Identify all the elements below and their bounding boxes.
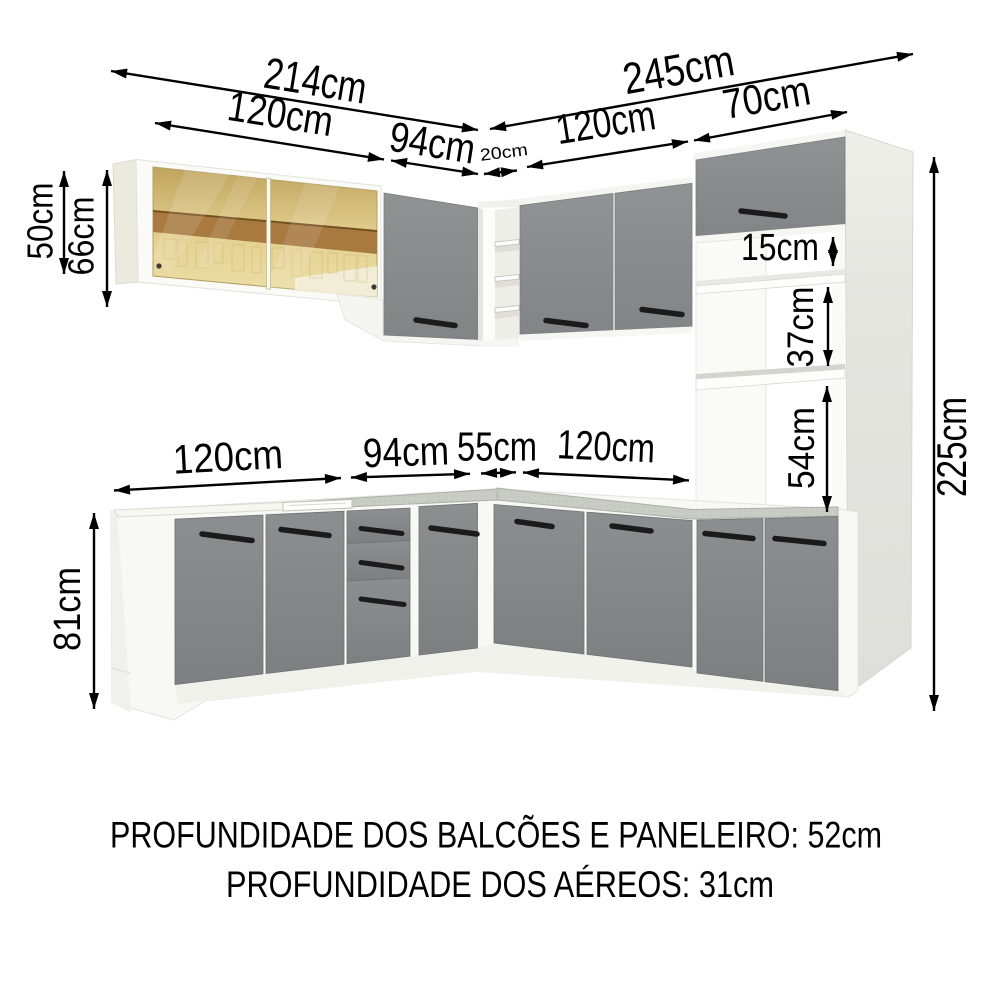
svg-text:54cm: 54cm: [781, 407, 822, 489]
svg-text:94cm: 94cm: [362, 427, 450, 476]
svg-text:120cm: 120cm: [172, 431, 284, 483]
svg-text:15cm: 15cm: [741, 227, 819, 269]
svg-text:37cm: 37cm: [780, 287, 821, 368]
svg-text:81cm: 81cm: [47, 567, 89, 651]
svg-text:66cm: 66cm: [61, 197, 102, 276]
svg-text:225cm: 225cm: [928, 397, 975, 497]
svg-text:55cm: 55cm: [457, 423, 537, 469]
svg-text:PROFUNDIDADE DOS AÉREOS: 31cm: PROFUNDIDADE DOS AÉREOS: 31cm: [226, 864, 774, 905]
svg-text:50cm: 50cm: [20, 183, 61, 260]
svg-text:120cm: 120cm: [556, 421, 656, 471]
svg-text:PROFUNDIDADE DOS BALCÕES E PAN: PROFUNDIDADE DOS BALCÕES E PANELEIRO: 52…: [110, 814, 882, 855]
